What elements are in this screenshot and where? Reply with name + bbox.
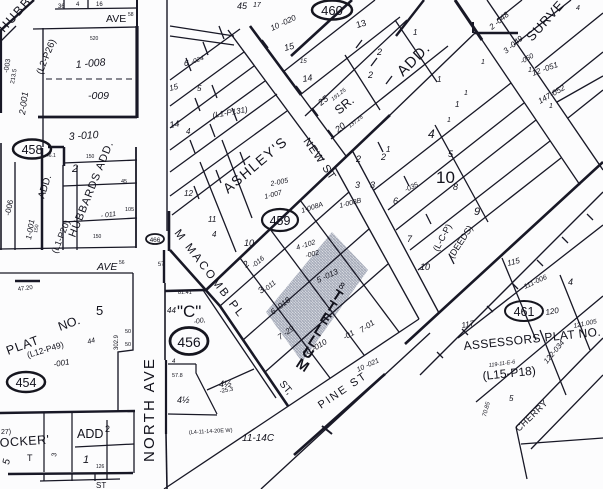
svg-text:16: 16 <box>96 2 103 8</box>
svg-text:3 -010: 3 -010 <box>68 129 99 143</box>
svg-text:4: 4 <box>568 277 573 287</box>
svg-text:1: 1 <box>83 454 89 466</box>
svg-text:520: 520 <box>90 36 99 42</box>
svg-text:458: 458 <box>22 143 43 157</box>
svg-text:9: 9 <box>474 206 480 218</box>
svg-text:15: 15 <box>300 59 307 65</box>
svg-text:2: 2 <box>105 424 110 434</box>
svg-text:2: 2 <box>376 47 382 57</box>
svg-text:6: 6 <box>393 196 398 206</box>
svg-text:4: 4 <box>212 230 217 239</box>
svg-text:4½: 4½ <box>177 395 190 405</box>
svg-text:2: 2 <box>355 154 361 164</box>
svg-text:58: 58 <box>128 12 134 18</box>
svg-text:2: 2 <box>71 163 78 175</box>
svg-text:466: 466 <box>150 237 161 244</box>
svg-text:11: 11 <box>208 215 216 224</box>
svg-text:10: 10 <box>420 262 430 272</box>
svg-text:1: 1 <box>447 117 451 124</box>
svg-text:459: 459 <box>270 214 291 228</box>
svg-text:1: 1 <box>437 75 441 84</box>
svg-text:57: 57 <box>158 261 166 268</box>
svg-text:3: 3 <box>370 180 375 190</box>
svg-text:454: 454 <box>16 376 37 390</box>
svg-text:10: 10 <box>244 238 254 248</box>
svg-text:460: 460 <box>321 3 343 18</box>
svg-text:4: 4 <box>576 5 580 12</box>
svg-text:ST: ST <box>96 481 106 489</box>
svg-text:AVE: AVE <box>96 261 118 273</box>
svg-text:302.9: 302.9 <box>114 334 120 350</box>
svg-text:6: 6 <box>184 59 189 68</box>
svg-text:AVE: AVE <box>106 13 126 25</box>
svg-text:17: 17 <box>253 2 262 9</box>
svg-text:1: 1 <box>386 145 390 154</box>
svg-text:456: 456 <box>177 334 201 350</box>
svg-text:56: 56 <box>119 260 125 266</box>
svg-text:4: 4 <box>428 127 435 141</box>
svg-text:8: 8 <box>453 182 458 192</box>
svg-text:45: 45 <box>237 1 248 11</box>
svg-text:36: 36 <box>58 4 65 10</box>
svg-text:-009: -009 <box>88 90 109 102</box>
svg-text:1: 1 <box>481 59 485 66</box>
svg-text:81.41: 81.41 <box>178 290 192 296</box>
svg-text:126: 126 <box>96 464 105 470</box>
svg-text:50: 50 <box>125 342 131 348</box>
svg-text:105: 105 <box>125 207 134 213</box>
svg-text:14: 14 <box>302 72 314 84</box>
svg-text:T: T <box>27 453 33 463</box>
svg-text:46.1: 46.1 <box>46 153 56 159</box>
svg-text:4: 4 <box>186 127 191 136</box>
svg-text:150: 150 <box>93 234 102 240</box>
svg-text:12: 12 <box>184 189 193 198</box>
svg-text:2: 2 <box>367 70 373 80</box>
svg-text:3: 3 <box>355 180 360 190</box>
svg-text:45: 45 <box>121 179 127 185</box>
svg-text:5: 5 <box>197 84 202 93</box>
svg-text:14: 14 <box>169 118 181 130</box>
svg-text:5: 5 <box>509 394 514 403</box>
svg-text:44: 44 <box>167 306 176 315</box>
svg-text:11-14C: 11-14C <box>242 433 275 444</box>
svg-text:1: 1 <box>549 103 553 110</box>
svg-text:1: 1 <box>455 100 459 109</box>
svg-text:150: 150 <box>86 154 95 160</box>
svg-text:57.8: 57.8 <box>172 373 183 379</box>
svg-text:1: 1 <box>413 28 417 37</box>
svg-text:5: 5 <box>96 303 103 318</box>
svg-text:461: 461 <box>514 305 535 319</box>
svg-text:50: 50 <box>125 329 131 335</box>
svg-text:1: 1 <box>464 90 468 97</box>
svg-text:ADD: ADD <box>77 427 103 441</box>
svg-text:NORTH AVE: NORTH AVE <box>141 357 158 462</box>
